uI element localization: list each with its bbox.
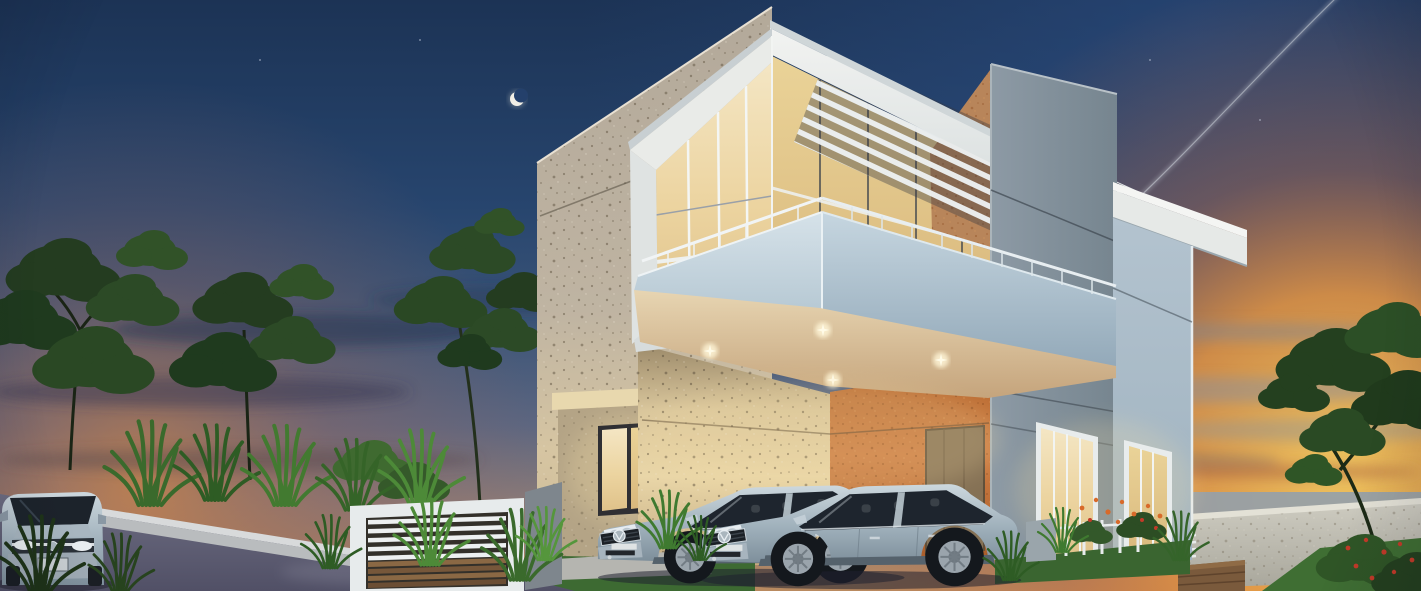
vignette [0,0,1421,591]
render-canvas [0,0,1421,591]
scene-architectural-render [0,0,1421,591]
